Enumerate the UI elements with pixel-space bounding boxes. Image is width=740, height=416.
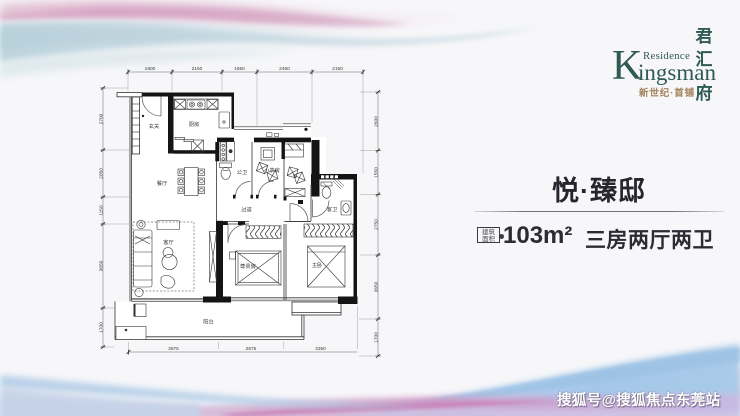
svg-text:1700: 1700 [374,332,380,343]
svg-text:2750: 2750 [374,219,380,230]
svg-text:过道: 过道 [241,206,252,214]
svg-text:2450: 2450 [279,66,290,72]
svg-text:2050: 2050 [99,168,105,179]
svg-text:玄关: 玄关 [149,122,160,130]
svg-text:1550: 1550 [374,167,380,178]
svg-text:1150: 1150 [99,205,105,216]
svg-text:2700: 2700 [99,113,105,124]
svg-text:餐厅: 餐厅 [157,179,168,187]
svg-text:3975: 3975 [168,346,179,352]
svg-text:2150: 2150 [332,66,343,72]
svg-text:2150: 2150 [192,66,203,72]
svg-text:阳台: 阳台 [203,318,214,326]
svg-text:1700: 1700 [99,322,105,333]
svg-text:厨房: 厨房 [189,120,200,128]
svg-text:主卧: 主卧 [312,261,323,269]
svg-text:3350: 3350 [315,346,326,352]
svg-text:2875: 2875 [246,346,257,352]
svg-text:3650: 3650 [374,281,380,292]
svg-text:1650: 1650 [234,66,245,72]
svg-text:小茶房: 小茶房 [264,166,280,174]
svg-text:1800: 1800 [145,66,156,72]
svg-text:客厅: 客厅 [163,238,174,246]
svg-text:公卫: 公卫 [237,169,248,176]
svg-text:尊贵房: 尊贵房 [240,262,256,270]
svg-text:3650: 3650 [99,260,105,271]
svg-text:客卫: 客卫 [327,205,338,213]
svg-text:2600: 2600 [374,116,380,127]
